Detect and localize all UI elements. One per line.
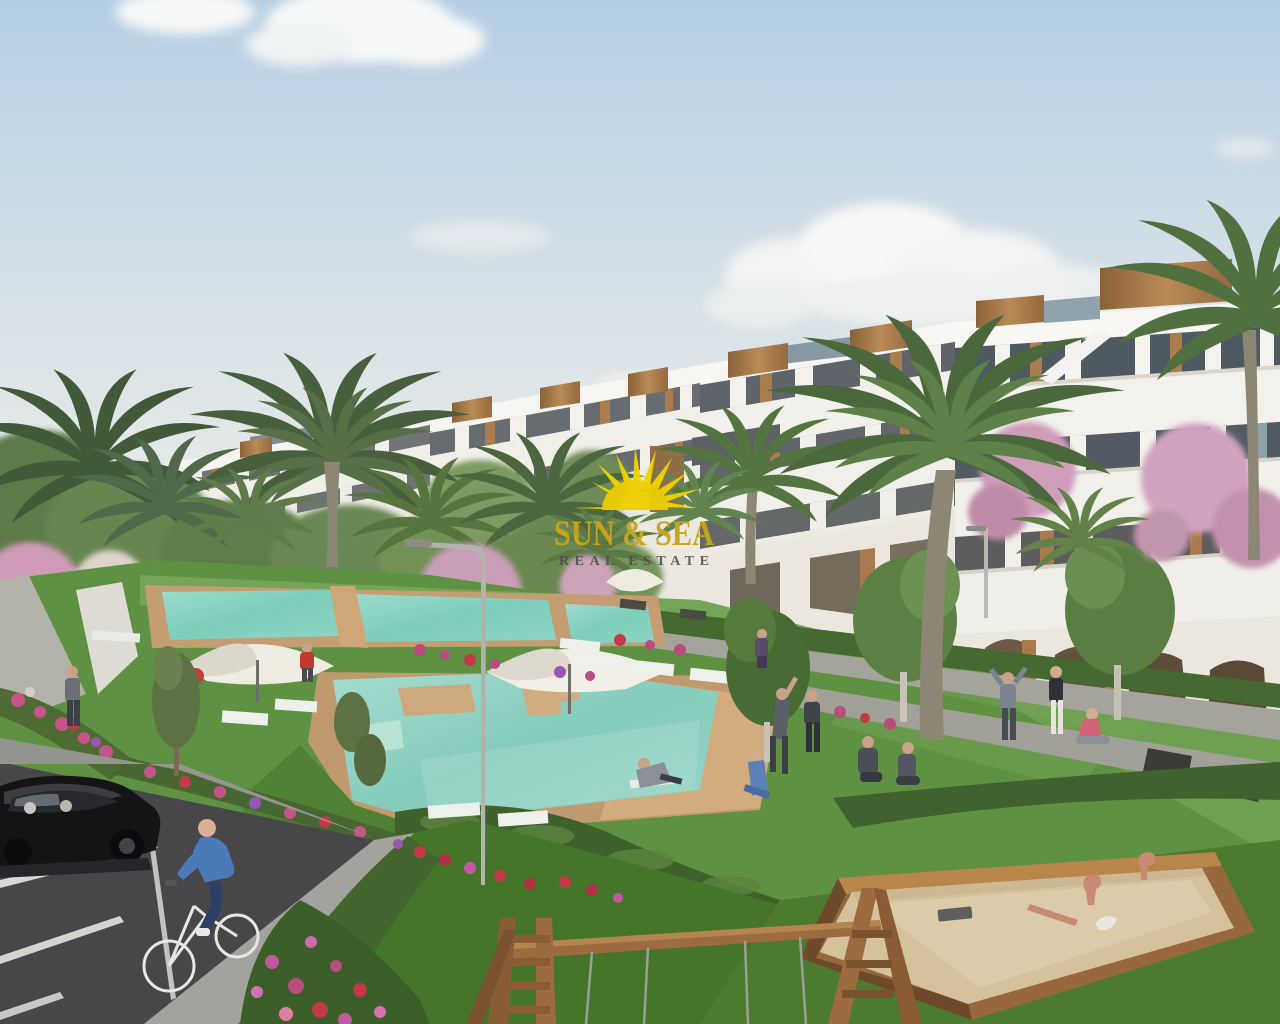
- svg-text:SUN & SEA: SUN & SEA: [554, 513, 714, 553]
- svg-text:REAL ESTATE: REAL ESTATE: [559, 554, 709, 569]
